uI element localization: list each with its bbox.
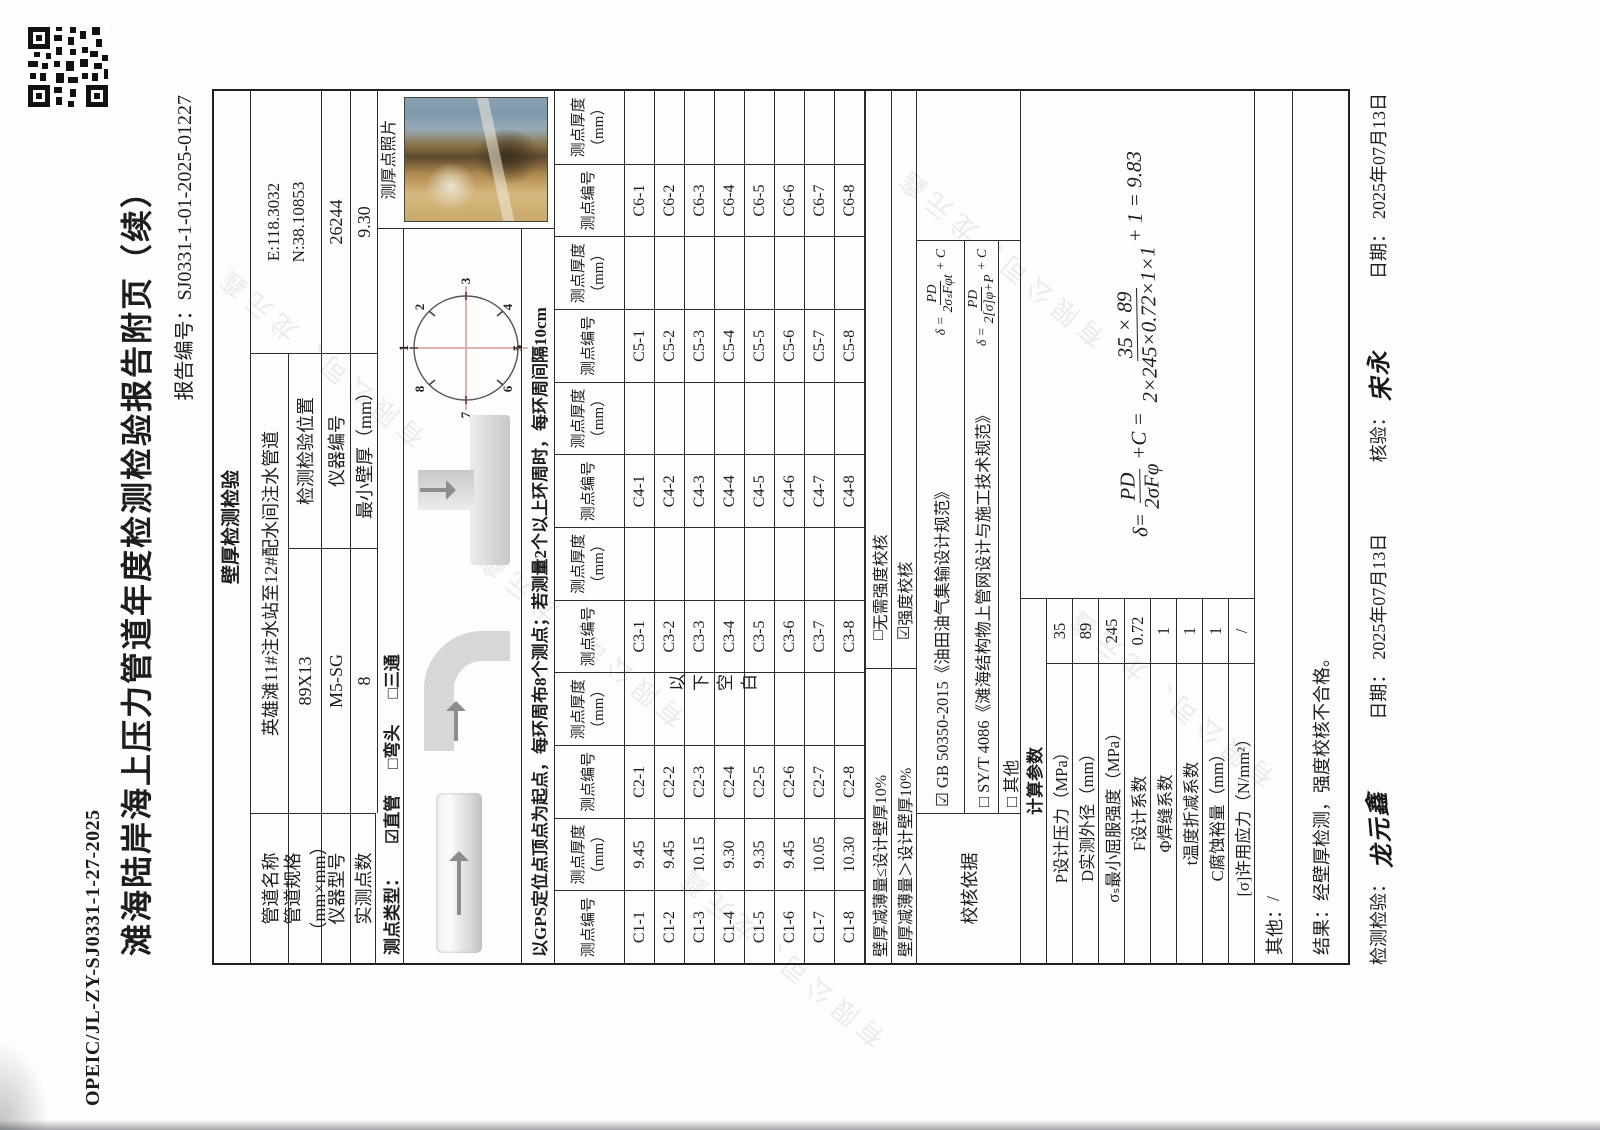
checker-label: 核验：: [1365, 408, 1391, 462]
grid-point-id-cell: C6-2: [655, 164, 685, 237]
grid-thickness-value-cell: [805, 236, 835, 309]
min-thickness-value: 9.30: [351, 91, 378, 353]
grid-point-id-cell: C3-1: [625, 600, 655, 673]
grid-thickness-header: 测点厚度（mm）: [555, 91, 625, 164]
grid-thickness-value-cell: [715, 91, 745, 164]
grid-thickness-header: 测点厚度（mm）: [555, 818, 625, 891]
param-label: D实测外径（mm）: [1073, 663, 1099, 963]
grid-thickness-value-cell: [625, 236, 655, 309]
grid-point-id-cell: C1-5: [745, 890, 775, 963]
grid-point-id-cell: C5-4: [715, 309, 745, 382]
formula-gb: δ = PD2σₛFφt + C: [925, 249, 956, 335]
grid-thickness-value-cell: [715, 527, 745, 600]
grid-thickness-value-cell: [685, 91, 715, 164]
checkbox-checked-icon: ☑: [894, 626, 914, 640]
strength-check-option: ☑强度校核: [892, 91, 917, 668]
grid-point-id-cell: C1-4: [715, 890, 745, 963]
point-type-and-diagrams: 测点类型： ☑直管 □弯头 □三通: [378, 91, 555, 963]
ring-point-7: 7: [458, 412, 474, 419]
grid-point-id-cell: C3-6: [775, 600, 805, 673]
grid-point-id-cell: C1-2: [655, 890, 685, 963]
grid-point-id-cell: C1-1: [625, 890, 655, 963]
grid-thickness-value-cell: [625, 382, 655, 455]
grid-point-id-cell: C5-5: [745, 309, 775, 382]
param-label: σₛ最小屈服强度（MPa）: [1099, 663, 1125, 963]
grid-point-id-cell: C4-1: [625, 454, 655, 527]
formula-syt: δ = PD2[σ]φ+P + C: [966, 249, 997, 346]
straight-pipe-diagram: [436, 793, 482, 953]
reduction-gt-label: 壁厚减薄量＞设计壁厚10%: [892, 668, 917, 963]
grid-thickness-value-cell: 9.45: [655, 818, 685, 891]
param-label: P设计压力（MPa）: [1047, 663, 1073, 963]
grid-point-id-cell: C2-2: [655, 745, 685, 818]
param-value: 1: [1177, 598, 1203, 663]
ring-point-5: 5: [510, 345, 526, 352]
grid-thickness-header: 测点厚度（mm）: [555, 382, 625, 455]
param-value: 245: [1099, 598, 1125, 663]
grid-id-header: 测点编号: [555, 745, 625, 818]
grid-id-header: 测点编号: [555, 309, 625, 382]
grid-thickness-value-cell: [835, 672, 865, 745]
basis-item-other: □ 其他: [999, 240, 1021, 813]
grid-point-id-cell: C3-7: [805, 600, 835, 673]
grid-point-id-cell: C5-2: [655, 309, 685, 382]
check-basis-label: 校核依据: [917, 813, 1021, 963]
param-value: 1: [1151, 598, 1177, 663]
grid-point-id-cell: C2-4: [715, 745, 745, 818]
calc-params-header: 计算参数: [1021, 598, 1047, 963]
grid-point-id-cell: C4-4: [715, 454, 745, 527]
grid-point-id-cell: C3-2: [655, 600, 685, 673]
grid-point-id-cell: C2-7: [805, 745, 835, 818]
instrument-model-label: 仪器型号: [322, 813, 351, 963]
grid-thickness-value-cell: 10.15: [685, 818, 715, 891]
grid-point-id-cell: C2-1: [625, 745, 655, 818]
page-title: 滩海陆岸海上压力管道年度检测检验报告附页（续）: [112, 0, 158, 1130]
grid-point-id-cell: C6-1: [625, 164, 655, 237]
pipe-diagrams: 1 2 3 4 5 6 7 8: [404, 228, 522, 963]
ring-point-3: 3: [458, 278, 474, 285]
grid-thickness-value-cell: [685, 236, 715, 309]
grid-point-id-cell: C5-6: [775, 309, 805, 382]
basis-item-gb: ☑ GB 50350-2015《油田油气集输设计规范》 δ = PD2σₛFφt…: [917, 240, 965, 813]
grid-thickness-value-cell: [835, 382, 865, 455]
ring-point-1: 1: [396, 345, 412, 352]
grid-thickness-value-cell: [835, 91, 865, 164]
param-label: C腐蚀裕量（mm）: [1203, 663, 1229, 963]
grid-thickness-value-cell: [655, 91, 685, 164]
report-number-value: SJ0331-1-01-2025-01227: [174, 95, 196, 301]
grid-point-id-cell: C4-5: [745, 454, 775, 527]
min-thickness-label: 最小壁厚（mm）: [351, 353, 378, 548]
inspection-date: 2025年07月13日: [1365, 534, 1391, 660]
check-basis-table: 校核依据 ☑ GB 50350-2015《油田油气集输设计规范》 δ = PD2…: [917, 91, 1021, 963]
elbow-pipe-diagram: [424, 631, 510, 751]
grid-thickness-value-cell: [715, 382, 745, 455]
inspection-form: 壁厚检测检验 管道名称 英雄滩11#注水站至12#配水间注水管道 E:118.3…: [212, 89, 1350, 965]
grid-point-id-cell: C3-5: [745, 600, 775, 673]
param-value: /: [1229, 598, 1255, 663]
grid-thickness-value-cell: 9.45: [775, 818, 805, 891]
instrument-model-value: M5-SG: [322, 548, 351, 813]
grid-thickness-value-cell: [805, 382, 835, 455]
other-row: 其他：/: [1255, 91, 1293, 963]
grid-thickness-value-cell: [745, 382, 775, 455]
inspector-label: 检测检验：: [1365, 875, 1391, 965]
grid-thickness-header: 测点厚度（mm）: [555, 672, 625, 745]
thickness-check-rows: 壁厚减薄量≤设计壁厚10% □无需强度校核 壁厚减薄量＞设计壁厚10% ☑强度校…: [866, 91, 917, 963]
result-row: 结果：经壁厚检测，强度校核不合格。: [1293, 91, 1348, 963]
location-value: E:118.3032N:38.10853: [251, 91, 322, 353]
grid-point-id-cell: C4-7: [805, 454, 835, 527]
instrument-no-label: 仪器编号: [322, 353, 351, 548]
grid-thickness-value-cell: [685, 382, 715, 455]
checkbox-checked-icon: ☑: [383, 829, 402, 844]
scan-corner-shadow: [0, 1040, 50, 1130]
measurement-point-photo: [404, 97, 548, 222]
grid-point-id-cell: C2-6: [775, 745, 805, 818]
grid-thickness-value-cell: 10.30: [835, 818, 865, 891]
spec-value: 89X13: [289, 548, 322, 813]
param-value: 35: [1047, 598, 1073, 663]
pipeline-info-table: 管道名称 英雄滩11#注水站至12#配水间注水管道 E:118.3032N:38…: [251, 91, 378, 963]
grid-point-id-cell: C6-6: [775, 164, 805, 237]
grid-thickness-value-cell: [775, 527, 805, 600]
report-sheet: 有限公司、龙元鑫 有限公司、龙元鑫 有限公司、龙元鑫 有限公司、龙元鑫 有限公司…: [0, 0, 1600, 1130]
grid-point-id-cell: C3-3: [685, 600, 715, 673]
grid-thickness-value-cell: [745, 527, 775, 600]
inspector-signature: 龙元鑫: [1357, 790, 1399, 871]
grid-point-id-cell: C1-7: [805, 890, 835, 963]
grid-point-id-cell: C4-2: [655, 454, 685, 527]
date-label: 日期：: [1365, 225, 1391, 279]
grid-point-id-cell: C4-3: [685, 454, 715, 527]
ring-point-4: 4: [500, 304, 516, 311]
grid-point-id-cell: C6-4: [715, 164, 745, 237]
grid-thickness-value-cell: [655, 527, 685, 600]
grid-point-id-cell: C3-8: [835, 600, 865, 673]
pipe-name-value: 英雄滩11#注水站至12#配水间注水管道: [251, 353, 289, 813]
location-label: 检测检验位置: [289, 353, 322, 548]
point-type-label: 测点类型：: [378, 870, 403, 955]
grid-thickness-value-cell: [775, 236, 805, 309]
grid-id-header: 测点编号: [555, 890, 625, 963]
points-count-value: 8: [351, 548, 378, 813]
grid-point-id-cell: C6-3: [685, 164, 715, 237]
ring-point-8: 8: [412, 386, 428, 393]
grid-thickness-value-cell: [835, 527, 865, 600]
grid-thickness-value-cell: [685, 527, 715, 600]
document-code: OPEIC/JL-ZY-SJ0331-1-27-2025: [82, 809, 105, 1106]
grid-thickness-value-cell: [775, 91, 805, 164]
instrument-no-value: 26244: [322, 91, 351, 353]
date-label: 日期：: [1365, 666, 1391, 720]
grid-point-id-cell: C2-3: [685, 745, 715, 818]
grid-thickness-value-cell: [805, 672, 835, 745]
photo-label: 测厚点照片: [378, 91, 402, 228]
checkbox-icon: □: [870, 630, 888, 640]
grid-point-id-cell: C5-7: [805, 309, 835, 382]
grid-point-id-cell: C2-8: [835, 745, 865, 818]
grid-id-header: 测点编号: [555, 454, 625, 527]
photo-cell: 测厚点照片: [378, 91, 555, 228]
grid-point-id-cell: C6-5: [745, 164, 775, 237]
grid-thickness-value-cell: [715, 236, 745, 309]
measurement-grid: 以下空白 测点编号测点厚度（mm）测点编号测点厚度（mm）测点编号测点厚度（mm…: [555, 91, 866, 963]
calc-formula-cell: δ= PD2σFφ +C = 35 × 892×245×0.72×1×1 + 1…: [1021, 91, 1255, 598]
grid-point-id-cell: C6-8: [835, 164, 865, 237]
checkbox-checked-icon: ☑: [933, 792, 952, 807]
reduction-le-label: 壁厚减薄量≤设计壁厚10%: [866, 668, 892, 963]
param-value: 0.72: [1125, 598, 1151, 663]
thickness-calculation: δ= PD2σFφ +C = 35 × 892×245×0.72×1×1 + 1…: [1111, 151, 1165, 538]
scan-edge-shadow: [0, 1120, 1600, 1130]
param-label: [σ]许用应力（N/mm²）: [1229, 663, 1255, 963]
basis-empty-cell: [917, 91, 1021, 240]
grid-thickness-value-cell: [625, 91, 655, 164]
tee-pipe-diagram: [418, 415, 510, 565]
report-number: 报告编号：SJ0331-1-01-2025-01227: [168, 95, 197, 401]
point-type-option-tee: □三通: [378, 654, 403, 698]
point-type-option-straight: ☑直管: [378, 795, 403, 844]
param-label: t温度折减系数: [1177, 663, 1203, 963]
grid-thickness-value-cell: 9.35: [745, 818, 775, 891]
grid-point-id-cell: C1-8: [835, 890, 865, 963]
grid-thickness-value-cell: [625, 527, 655, 600]
grid-point-id-cell: C4-6: [775, 454, 805, 527]
param-label: F设计系数: [1125, 663, 1151, 963]
grid-thickness-header: 测点厚度（mm）: [555, 527, 625, 600]
checkbox-icon: □: [383, 758, 402, 768]
param-value: 89: [1073, 598, 1099, 663]
grid-point-id-cell: C4-8: [835, 454, 865, 527]
grid-thickness-value-cell: [805, 91, 835, 164]
checkbox-icon: □: [383, 688, 402, 698]
scanned-report-page: 有限公司、龙元鑫 有限公司、龙元鑫 有限公司、龙元鑫 有限公司、龙元鑫 有限公司…: [0, 0, 1600, 1130]
grid-point-id-cell: C5-8: [835, 309, 865, 382]
ring-point-6: 6: [500, 386, 516, 393]
grid-thickness-header: 测点厚度（mm）: [555, 236, 625, 309]
blank-below-note: 以下空白: [631, 672, 801, 745]
grid-thickness-value-cell: [655, 382, 685, 455]
param-label: Φ焊缝系数: [1151, 663, 1177, 963]
checker-signature: 宋永: [1358, 349, 1397, 404]
basis-item-syt: □ SY/T 4086《滩海结构物上管网设计与施工技术规范》 δ = PD2[σ…: [965, 240, 999, 813]
grid-thickness-value-cell: [745, 236, 775, 309]
grid-thickness-value-cell: [805, 527, 835, 600]
grid-point-id-cell: C2-5: [745, 745, 775, 818]
param-value: 1: [1203, 598, 1229, 663]
grid-point-id-cell: C1-3: [685, 890, 715, 963]
grid-thickness-value-cell: 9.30: [715, 818, 745, 891]
grid-thickness-value-cell: 9.45: [625, 818, 655, 891]
signature-row: 检测检验： 龙元鑫 日期： 2025年07月13日 核验： 宋永 日期： 202…: [1360, 93, 1395, 965]
no-strength-check-option: □无需强度校核: [866, 91, 892, 668]
grid-point-id-cell: C3-4: [715, 600, 745, 673]
calc-params-table: 计算参数 δ= PD2σFφ +C = 35 × 892×245×0.72×1×…: [1021, 91, 1255, 963]
section-title: 壁厚检测检验: [214, 91, 251, 963]
grid-thickness-value-cell: 10.05: [805, 818, 835, 891]
grid-id-header: 测点编号: [555, 164, 625, 237]
grid-point-id-cell: C1-6: [775, 890, 805, 963]
ring-point-2: 2: [412, 304, 428, 311]
grid-thickness-value-cell: [745, 91, 775, 164]
grid-point-id-cell: C5-3: [685, 309, 715, 382]
grid-thickness-value-cell: [775, 382, 805, 455]
grid-point-id-cell: C5-1: [625, 309, 655, 382]
grid-point-id-cell: C6-7: [805, 164, 835, 237]
checkbox-icon: □: [974, 797, 993, 807]
points-count-label: 实测点数: [351, 813, 376, 963]
spec-label: 管道规格（mm×mm）: [289, 813, 322, 963]
qr-code-icon: [26, 25, 110, 109]
check-date: 2025年07月13日: [1365, 93, 1391, 219]
grid-thickness-value-cell: [835, 236, 865, 309]
report-number-label: 报告编号：: [174, 301, 196, 401]
checkbox-icon: □: [1002, 797, 1021, 807]
point-type-option-elbow: □弯头: [378, 724, 403, 768]
grid-thickness-value-cell: [655, 236, 685, 309]
grid-id-header: 测点编号: [555, 600, 625, 673]
